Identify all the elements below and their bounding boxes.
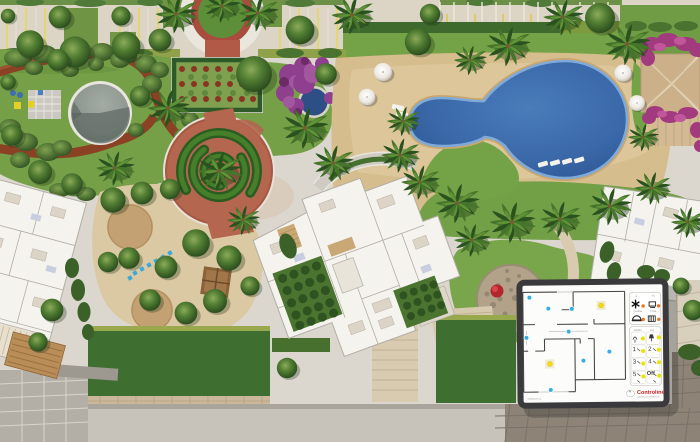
svg-text:MODELO 01: MODELO 01 bbox=[528, 398, 542, 401]
svg-text:5: 5 bbox=[633, 371, 637, 378]
svg-text:Luz: Luz bbox=[650, 328, 655, 332]
svg-text:Cortina: Cortina bbox=[634, 309, 643, 313]
svg-text:TV: TV bbox=[651, 294, 655, 298]
svg-text:automacao residencial: automacao residencial bbox=[637, 395, 659, 398]
svg-text:A: A bbox=[635, 294, 637, 298]
svg-text:Controline: Controline bbox=[637, 390, 665, 396]
svg-text:4: 4 bbox=[648, 358, 652, 365]
svg-text:Porta: Porta bbox=[650, 309, 657, 313]
svg-text:3: 3 bbox=[633, 359, 637, 366]
svg-text:Jardim: Jardim bbox=[634, 328, 642, 332]
svg-text:1: 1 bbox=[633, 346, 637, 353]
svg-text:2: 2 bbox=[648, 346, 652, 353]
